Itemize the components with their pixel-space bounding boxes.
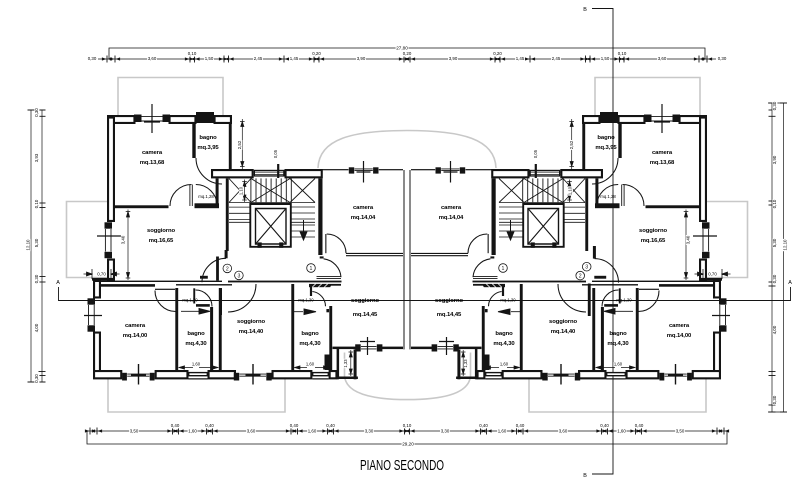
svg-text:camera: camera (441, 205, 462, 211)
svg-text:0,10: 0,10 (772, 199, 777, 208)
svg-text:1: 1 (502, 266, 505, 272)
svg-text:0,10: 0,10 (34, 199, 39, 208)
svg-text:3: 3 (585, 265, 588, 271)
svg-text:5,30: 5,30 (772, 238, 777, 247)
svg-text:bagno: bagno (301, 331, 319, 337)
svg-text:bagno: bagno (187, 331, 205, 337)
svg-text:B: B (583, 473, 587, 479)
svg-text:mq.14,00: mq.14,00 (123, 333, 148, 339)
svg-text:bagno: bagno (199, 135, 217, 141)
svg-text:1,50: 1,50 (205, 56, 214, 61)
svg-text:bagno: bagno (495, 331, 513, 337)
svg-text:2: 2 (226, 266, 229, 272)
svg-text:PIANO SECONDO: PIANO SECONDO (360, 457, 444, 474)
svg-text:4,00: 4,00 (34, 323, 39, 332)
svg-text:1,33: 1,33 (463, 359, 468, 368)
svg-text:soggiorno: soggiorno (351, 298, 379, 304)
svg-text:0,40: 0,40 (635, 423, 644, 428)
svg-text:mq.4,30: mq.4,30 (185, 341, 207, 347)
svg-text:3,90: 3,90 (449, 56, 458, 61)
svg-text:bagno: bagno (609, 331, 627, 337)
svg-text:2,52: 2,52 (237, 140, 242, 149)
svg-text:soggiorno: soggiorno (237, 319, 265, 325)
svg-text:0,30: 0,30 (88, 56, 97, 61)
svg-text:3,30: 3,30 (365, 428, 374, 433)
svg-text:0,70: 0,70 (97, 271, 106, 276)
svg-text:29,20: 29,20 (402, 442, 414, 447)
svg-text:0,10: 0,10 (188, 51, 197, 56)
svg-text:1,50: 1,50 (601, 56, 610, 61)
svg-text:1,60: 1,60 (498, 428, 507, 433)
svg-text:camera: camera (652, 150, 673, 156)
svg-text:1,45: 1,45 (290, 56, 299, 61)
svg-text:mq.13,68: mq.13,68 (650, 160, 675, 166)
svg-text:1,60: 1,60 (617, 428, 626, 433)
svg-text:mq.1,28: mq.1,28 (198, 194, 214, 199)
svg-text:0,20: 0,20 (312, 51, 321, 56)
svg-text:4,00: 4,00 (772, 325, 777, 334)
svg-text:mq.14,00: mq.14,00 (667, 333, 692, 339)
svg-text:0,10: 0,10 (618, 51, 627, 56)
svg-text:mq.16,65: mq.16,65 (641, 238, 666, 244)
svg-text:12,10: 12,10 (783, 239, 788, 251)
svg-text:camera: camera (353, 205, 374, 211)
svg-text:mq.14,04: mq.14,04 (439, 215, 464, 221)
svg-text:mq.14,45: mq.14,45 (437, 312, 462, 318)
svg-text:5,30: 5,30 (34, 238, 39, 247)
svg-text:0,40: 0,40 (326, 423, 335, 428)
svg-text:27,80: 27,80 (396, 46, 408, 51)
svg-text:A: A (56, 280, 60, 286)
svg-text:0,40: 0,40 (516, 423, 525, 428)
svg-text:mq.1,28: mq.1,28 (600, 194, 616, 199)
svg-text:soggiorno: soggiorno (639, 228, 667, 234)
svg-text:mq.1,30: mq.1,30 (182, 298, 198, 303)
svg-text:1,60: 1,60 (308, 428, 317, 433)
svg-text:0,30: 0,30 (718, 56, 727, 61)
svg-text:3,40: 3,40 (686, 235, 691, 244)
svg-text:0,05: 0,05 (273, 149, 278, 158)
svg-text:mq.14,04: mq.14,04 (351, 215, 376, 221)
svg-text:soggiorno: soggiorno (147, 228, 175, 234)
svg-text:2: 2 (579, 274, 582, 280)
svg-text:B: B (583, 7, 587, 13)
svg-text:1,10: 1,10 (239, 186, 244, 195)
svg-text:mq.1,30: mq.1,30 (298, 298, 314, 303)
svg-text:1,10: 1,10 (568, 186, 573, 195)
svg-text:3,90: 3,90 (357, 56, 366, 61)
svg-text:1,60: 1,60 (614, 362, 623, 367)
svg-text:3,60: 3,60 (559, 428, 568, 433)
svg-text:mq.4,30: mq.4,30 (299, 341, 321, 347)
svg-text:0,30: 0,30 (34, 108, 39, 117)
svg-text:0,40: 0,40 (290, 423, 299, 428)
svg-text:12,10: 12,10 (25, 239, 30, 251)
svg-text:2,45: 2,45 (254, 56, 263, 61)
svg-text:mq.14,45: mq.14,45 (353, 312, 378, 318)
svg-text:3: 3 (237, 273, 240, 279)
svg-text:0,20: 0,20 (403, 51, 412, 56)
svg-text:0,70: 0,70 (708, 271, 717, 276)
svg-text:camera: camera (142, 150, 163, 156)
svg-text:1: 1 (310, 266, 313, 272)
svg-text:1,60: 1,60 (500, 362, 509, 367)
svg-text:1,45: 1,45 (516, 56, 525, 61)
svg-text:mq.4,30: mq.4,30 (493, 341, 515, 347)
svg-text:3,60: 3,60 (658, 56, 667, 61)
svg-text:0,30: 0,30 (34, 274, 39, 283)
svg-text:0,30: 0,30 (772, 395, 777, 404)
svg-text:mq.3,95: mq.3,95 (197, 145, 219, 151)
svg-text:mq.16,65: mq.16,65 (149, 238, 174, 244)
svg-text:A: A (788, 280, 792, 286)
svg-text:0,05: 0,05 (533, 149, 538, 158)
svg-text:0,40: 0,40 (600, 423, 609, 428)
svg-text:1,60: 1,60 (306, 362, 315, 367)
svg-text:3,30: 3,30 (441, 428, 450, 433)
svg-text:3,40: 3,40 (121, 235, 126, 244)
svg-text:0,30: 0,30 (772, 274, 777, 283)
svg-text:mq.14,40: mq.14,40 (239, 329, 264, 335)
svg-text:2,52: 2,52 (569, 140, 574, 149)
svg-text:1,60: 1,60 (188, 428, 197, 433)
svg-text:0,30: 0,30 (772, 101, 777, 110)
svg-text:mq.4,30: mq.4,30 (607, 341, 629, 347)
svg-text:3,50: 3,50 (130, 428, 139, 433)
svg-text:2,45: 2,45 (552, 56, 561, 61)
svg-text:mq.1,30: mq.1,30 (500, 298, 516, 303)
svg-text:mq.14,40: mq.14,40 (551, 329, 576, 335)
svg-text:soggiorno: soggiorno (549, 319, 577, 325)
svg-text:0,30: 0,30 (34, 374, 39, 383)
svg-text:0,40: 0,40 (479, 423, 488, 428)
svg-text:camera: camera (125, 323, 146, 329)
svg-text:bagno: bagno (597, 135, 615, 141)
svg-text:0,10: 0,10 (403, 423, 412, 428)
svg-text:mq.3,95: mq.3,95 (595, 145, 617, 151)
svg-text:mq.13,68: mq.13,68 (140, 160, 165, 166)
svg-text:3,60: 3,60 (247, 428, 256, 433)
svg-text:1,33: 1,33 (343, 359, 348, 368)
svg-text:1,60: 1,60 (192, 362, 201, 367)
svg-text:0,40: 0,40 (171, 423, 180, 428)
svg-text:0,20: 0,20 (493, 51, 502, 56)
svg-text:0,40: 0,40 (205, 423, 214, 428)
svg-text:3,60: 3,60 (148, 56, 157, 61)
svg-text:soggiorno: soggiorno (435, 298, 463, 304)
svg-text:3,90: 3,90 (772, 155, 777, 164)
svg-text:3,93: 3,93 (34, 153, 39, 162)
svg-text:mq.1,30: mq.1,30 (616, 298, 632, 303)
svg-text:3,50: 3,50 (676, 428, 685, 433)
svg-text:camera: camera (669, 323, 690, 329)
